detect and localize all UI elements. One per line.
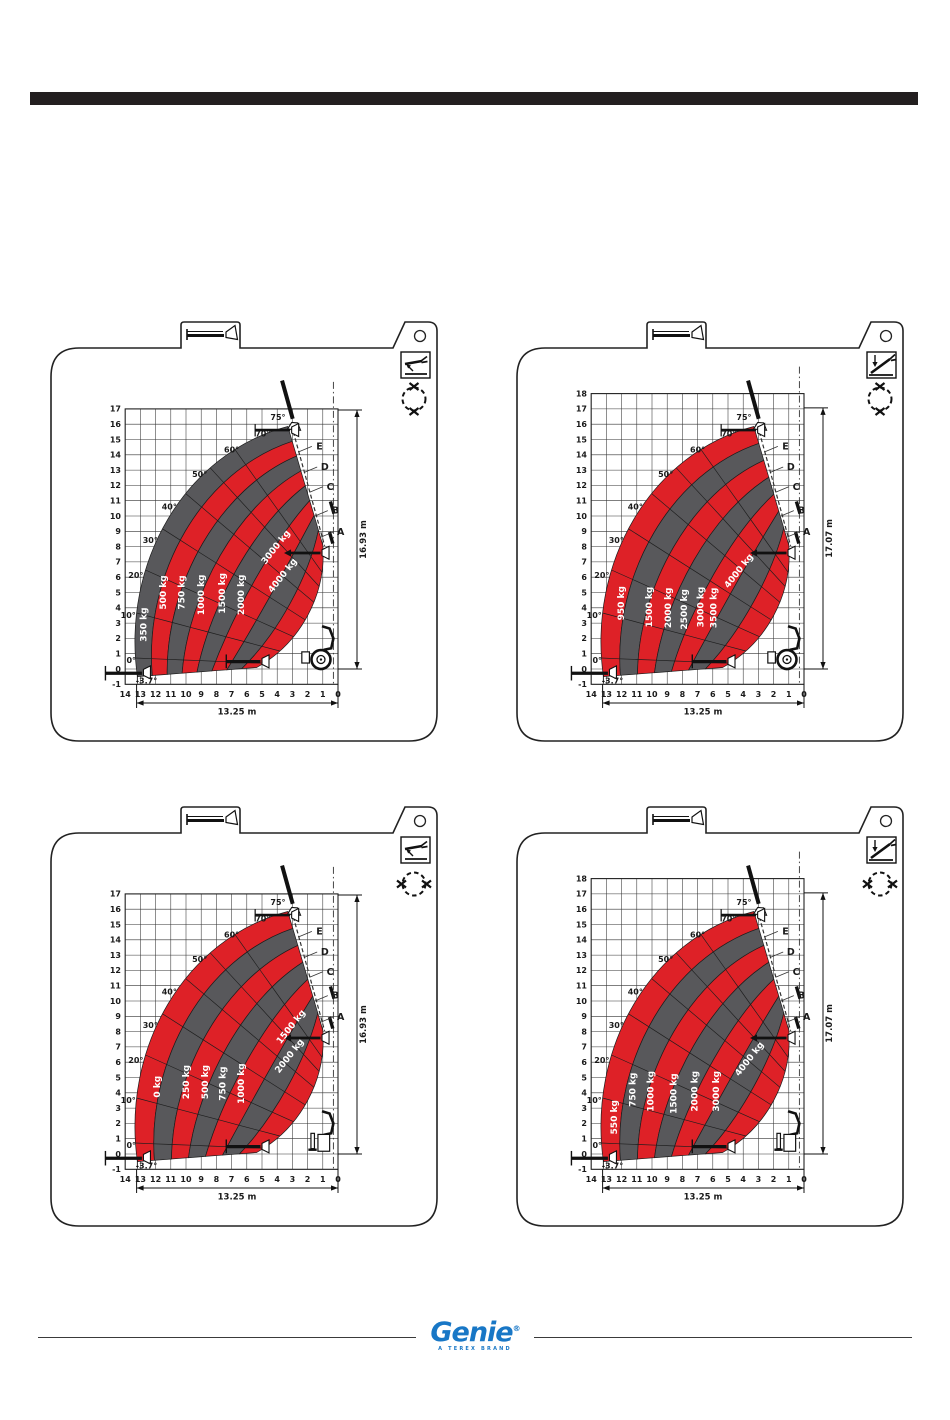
boom-position-letter: A (337, 527, 345, 538)
brand-tagline: A TEREX BRAND (430, 1346, 519, 1352)
boom-angle-label: 0° (126, 1141, 136, 1150)
boom-angle-label: 10° (587, 1096, 602, 1105)
boom-position-letter: A (803, 527, 811, 538)
page-header-bar (30, 92, 918, 105)
y-tick-label: 0 (115, 665, 121, 674)
x-tick-label: 1 (320, 690, 326, 699)
y-tick-label: 10 (576, 997, 588, 1006)
y-tick-label: -1 (578, 680, 587, 689)
x-tick-label: 2 (305, 1175, 311, 1184)
x-tick-label: 4 (274, 690, 280, 699)
x-tick-label: 9 (198, 690, 204, 699)
min-angle-label: -3.7° (602, 676, 624, 685)
boom-angle-label: 10° (121, 611, 136, 620)
x-tick-label: 14 (120, 690, 132, 699)
y-tick-label: 8 (581, 542, 587, 551)
y-tick-label: 9 (581, 1012, 587, 1021)
y-tick-label: -1 (112, 680, 121, 689)
y-tick-label: 5 (581, 1073, 587, 1082)
registered-mark: ® (513, 1324, 520, 1333)
min-angle-label: -3.7° (602, 1161, 624, 1170)
y-tick-label: 14 (576, 936, 588, 945)
boom-angle-label: 50° (658, 955, 673, 964)
boom-position-letter: D (321, 462, 329, 473)
y-tick-label: 17 (110, 890, 121, 899)
x-tick-label: 11 (631, 1175, 643, 1184)
boom-position-letter: A (803, 1012, 811, 1023)
y-tick-label: 16 (576, 905, 588, 914)
x-tick-label: 0 (801, 690, 807, 699)
pad-glyph (302, 652, 310, 663)
x-tick-label: 6 (710, 1175, 716, 1184)
x-tick-label: 0 (335, 690, 341, 699)
machine-tilt-wrench-icon (867, 352, 896, 378)
x-tick-label: 7 (229, 690, 235, 699)
width-dimension-label: 13.25 m (684, 1193, 723, 1203)
boom-position-letter: B (798, 991, 805, 1002)
boom-angle-label: 50° (192, 955, 207, 964)
zone-label: 2000 kg (664, 587, 674, 628)
width-dimension-label: 13.25 m (684, 708, 723, 718)
y-tick-label: 12 (110, 481, 121, 490)
y-tick-label: -1 (578, 1165, 587, 1174)
boom-position-letter: B (332, 991, 339, 1002)
x-tick-label: 3 (756, 690, 762, 699)
x-tick-label: 10 (646, 1175, 658, 1184)
x-tick-label: 11 (165, 1175, 177, 1184)
y-tick-label: 14 (110, 451, 122, 460)
x-tick-label: 2 (771, 690, 777, 699)
y-tick-label: 15 (110, 920, 122, 929)
x-tick-label: 8 (214, 1175, 220, 1184)
zone-label: 3500 kg (710, 587, 720, 628)
x-tick-label: 3 (756, 1175, 762, 1184)
y-tick-label: 17 (576, 890, 587, 899)
y-tick-label: 16 (576, 420, 588, 429)
x-tick-label: 2 (771, 1175, 777, 1184)
stabilizer-box-glyph (784, 1134, 796, 1151)
boom-angle-label: 70° (721, 430, 736, 439)
x-tick-label: 13 (135, 1175, 146, 1184)
capacity-chart-panel-top-right: 1413121110987654321018171615141312111098… (516, 313, 908, 746)
y-tick-label: 12 (576, 481, 587, 490)
capacity-chart-panel-bottom-right: 1413121110987654321018171615141312111098… (516, 798, 908, 1231)
y-tick-label: 3 (581, 619, 587, 628)
x-tick-label: 9 (664, 690, 670, 699)
y-tick-label: 3 (115, 619, 121, 628)
boom-position-letter: E (782, 441, 789, 452)
boom-angle-label: 75° (736, 413, 751, 422)
x-tick-label: 10 (646, 690, 658, 699)
zone-label: 500 kg (159, 575, 169, 609)
boom-position-letter: A (337, 1012, 345, 1023)
zone-label: 750 kg (628, 1073, 638, 1107)
y-tick-label: 18 (576, 389, 588, 398)
x-tick-label: 7 (229, 1175, 235, 1184)
machine-tilt-wrench-icon (867, 837, 896, 863)
boom-position-letter: D (787, 947, 795, 958)
y-tick-label: 13 (576, 951, 587, 960)
boom-position-letter: D (321, 947, 329, 958)
boom-angle-label: 75° (736, 898, 751, 907)
y-tick-label: 15 (576, 435, 588, 444)
y-tick-label: 8 (115, 542, 121, 551)
boom-position-letter: C (327, 967, 334, 978)
stabilizer-leg-glyph (777, 1133, 780, 1148)
x-tick-label: 6 (244, 690, 250, 699)
boom-position-letter: E (316, 926, 323, 937)
capacity-chart-bottom-right: 1413121110987654321018171615141312111098… (516, 798, 908, 1231)
boom-position-letter: C (793, 482, 800, 493)
zone-label: 350 kg (139, 607, 149, 641)
boom-angle-label: 70° (255, 430, 270, 439)
boom-angle-label: 70° (721, 915, 736, 924)
x-tick-label: 3 (290, 1175, 296, 1184)
boom-angle-label: 30° (143, 536, 158, 545)
boom-angle-label: 20° (128, 571, 143, 580)
y-tick-label: 8 (115, 1027, 121, 1036)
zone-label: 1500 kg (669, 1073, 679, 1114)
zone-label: 2000 kg (691, 1071, 701, 1112)
height-dimension-label: 16.93 m (359, 520, 369, 559)
y-tick-label: 2 (581, 634, 587, 643)
zone-label: 950 kg (617, 586, 627, 620)
x-tick-label: 8 (680, 690, 686, 699)
boom-position-letter: B (798, 506, 805, 517)
y-tick-label: 7 (115, 558, 121, 567)
zone-label: 1000 kg (647, 1071, 657, 1112)
y-tick-label: 8 (581, 1027, 587, 1036)
x-tick-label: 14 (586, 1175, 598, 1184)
capacity-chart-top-right: 1413121110987654321018171615141312111098… (516, 313, 908, 746)
boom-position-letter: E (782, 926, 789, 937)
x-tick-label: 4 (740, 1175, 746, 1184)
machine-level-wrench-icon (401, 352, 430, 378)
y-tick-label: 11 (576, 982, 588, 991)
boom-angle-label: 75° (270, 413, 285, 422)
boom-angle-label: 30° (143, 1021, 158, 1030)
y-tick-label: 0 (115, 1150, 121, 1159)
x-tick-label: 6 (710, 690, 716, 699)
x-tick-label: 12 (616, 1175, 627, 1184)
y-tick-label: 6 (581, 573, 587, 582)
y-tick-label: 5 (581, 588, 587, 597)
height-dimension-label: 16.93 m (359, 1005, 369, 1044)
x-tick-label: 8 (214, 690, 220, 699)
zone-label: 750 kg (219, 1066, 229, 1100)
x-tick-label: 12 (616, 690, 627, 699)
y-tick-label: 3 (115, 1104, 121, 1113)
capacity-chart-bottom-left: 1413121110987654321017161514131211109876… (50, 798, 442, 1231)
zone-label: 750 kg (177, 575, 187, 609)
genie-logo: Genie® (430, 1317, 519, 1348)
y-tick-label: 10 (576, 512, 588, 521)
height-dimension-label: 17.07 m (825, 1004, 835, 1043)
y-tick-label: 15 (110, 435, 122, 444)
boom-angle-label: 50° (658, 470, 673, 479)
x-tick-label: 4 (274, 1175, 280, 1184)
boom-angle-label: 60° (224, 446, 239, 455)
boom-angle-label: 0° (126, 656, 136, 665)
x-tick-label: 1 (786, 1175, 792, 1184)
x-tick-label: 10 (180, 1175, 192, 1184)
y-tick-label: 16 (110, 905, 122, 914)
x-tick-label: 14 (586, 690, 598, 699)
x-tick-label: 8 (680, 1175, 686, 1184)
x-tick-label: 5 (725, 690, 731, 699)
y-tick-label: 9 (581, 527, 587, 536)
zone-label: 550 kg (610, 1100, 620, 1134)
y-tick-label: 7 (115, 1043, 121, 1052)
y-tick-label: 5 (115, 1073, 121, 1082)
y-tick-label: 13 (576, 466, 587, 475)
boom-angle-label: 20° (128, 1056, 143, 1065)
x-tick-label: 9 (664, 1175, 670, 1184)
boom-angle-label: 10° (121, 1096, 136, 1105)
y-tick-label: 13 (110, 951, 121, 960)
boom-angle-label: 40° (162, 987, 177, 996)
x-tick-label: 14 (120, 1175, 132, 1184)
y-tick-label: 14 (110, 936, 122, 945)
capacity-chart-panel-top-left: 1413121110987654321017161514131211109876… (50, 313, 442, 746)
x-tick-label: 1 (786, 690, 792, 699)
zone-label: 2000 kg (237, 574, 247, 615)
y-tick-label: 6 (115, 573, 121, 582)
boom-angle-label: 20° (594, 571, 609, 580)
x-tick-label: 5 (259, 690, 265, 699)
y-tick-label: 18 (576, 874, 588, 883)
zone-label: 3000 kg (697, 587, 707, 628)
y-tick-label: 5 (115, 588, 121, 597)
y-tick-label: 13 (110, 466, 121, 475)
y-tick-label: 14 (576, 451, 588, 460)
y-tick-label: 1 (115, 650, 121, 659)
pad-glyph (768, 652, 776, 663)
boom-position-letter: C (327, 482, 334, 493)
y-tick-label: 17 (576, 405, 587, 414)
zone-label: 1500 kg (218, 573, 228, 614)
y-tick-label: 6 (115, 1058, 121, 1067)
boom-angle-label: 60° (690, 931, 705, 940)
x-tick-label: 9 (198, 1175, 204, 1184)
x-tick-label: 10 (180, 690, 192, 699)
boom-angle-label: 30° (609, 536, 624, 545)
boom-angle-label: 75° (270, 898, 285, 907)
boom-position-letter: E (316, 441, 323, 452)
x-tick-label: 11 (165, 690, 177, 699)
y-tick-label: 9 (115, 527, 121, 536)
zone-label: 500 kg (201, 1065, 211, 1099)
min-angle-label: -3.7° (136, 676, 158, 685)
boom-angle-label: 60° (224, 931, 239, 940)
y-tick-label: -1 (112, 1165, 121, 1174)
boom-angle-label: 0° (592, 656, 602, 665)
stabilizer-leg-glyph (311, 1133, 314, 1148)
boom-angle-label: 70° (255, 915, 270, 924)
capacity-chart-panel-bottom-left: 1413121110987654321017161514131211109876… (50, 798, 442, 1231)
boom-angle-label: 30° (609, 1021, 624, 1030)
y-tick-label: 10 (110, 512, 122, 521)
x-tick-label: 7 (695, 690, 701, 699)
boom-angle-label: 40° (628, 502, 643, 511)
boom-angle-label: 0° (592, 1141, 602, 1150)
x-tick-label: 0 (801, 1175, 807, 1184)
y-tick-label: 11 (576, 497, 588, 506)
x-tick-label: 13 (601, 690, 612, 699)
y-tick-label: 0 (581, 1150, 587, 1159)
y-tick-label: 12 (110, 966, 121, 975)
y-tick-label: 9 (115, 1012, 121, 1021)
height-dimension-label: 17.07 m (825, 519, 835, 558)
y-tick-label: 11 (110, 497, 122, 506)
stabilizer-box-glyph (318, 1134, 330, 1151)
y-tick-label: 7 (581, 1043, 587, 1052)
x-tick-label: 5 (259, 1175, 265, 1184)
boom-angle-label: 40° (162, 502, 177, 511)
x-tick-label: 11 (631, 690, 643, 699)
y-tick-label: 11 (110, 982, 122, 991)
boom-position-letter: B (332, 506, 339, 517)
zone-label: 3000 kg (712, 1071, 722, 1112)
y-tick-label: 1 (581, 1135, 587, 1144)
zone-label: 0 kg (153, 1076, 163, 1098)
y-tick-label: 17 (110, 405, 121, 414)
capacity-chart-top-left: 1413121110987654321017161514131211109876… (50, 313, 442, 746)
x-tick-label: 4 (740, 690, 746, 699)
y-tick-label: 2 (115, 634, 121, 643)
boom-angle-label: 60° (690, 446, 705, 455)
y-tick-label: 0 (581, 665, 587, 674)
y-tick-label: 1 (115, 1135, 121, 1144)
x-tick-label: 5 (725, 1175, 731, 1184)
y-tick-label: 10 (110, 997, 122, 1006)
footer-brand: Genie® A TEREX BRAND (0, 1316, 950, 1354)
manual-page: { "page": { "top_bar_color": "#231f20", … (0, 0, 950, 1420)
x-tick-label: 6 (244, 1175, 250, 1184)
width-dimension-label: 13.25 m (218, 708, 257, 718)
y-tick-label: 12 (576, 966, 587, 975)
zone-label: 2500 kg (680, 589, 690, 630)
min-angle-label: -3.7° (136, 1161, 158, 1170)
y-tick-label: 1 (581, 650, 587, 659)
boom-position-letter: C (793, 967, 800, 978)
y-tick-label: 15 (576, 920, 588, 929)
boom-position-letter: D (787, 462, 795, 473)
x-tick-label: 7 (695, 1175, 701, 1184)
zone-label: 1000 kg (197, 574, 207, 615)
machine-level-wrench-icon (401, 837, 430, 863)
x-tick-label: 13 (135, 690, 146, 699)
y-tick-label: 6 (581, 1058, 587, 1067)
y-tick-label: 2 (115, 1119, 121, 1128)
width-dimension-label: 13.25 m (218, 1193, 257, 1203)
x-tick-label: 0 (335, 1175, 341, 1184)
y-tick-label: 7 (581, 558, 587, 567)
boom-angle-label: 20° (594, 1056, 609, 1065)
zone-label: 1500 kg (645, 587, 655, 628)
x-tick-label: 13 (601, 1175, 612, 1184)
boom-angle-label: 40° (628, 987, 643, 996)
y-tick-label: 2 (581, 1119, 587, 1128)
boom-angle-label: 10° (587, 611, 602, 620)
x-tick-label: 3 (290, 690, 296, 699)
x-tick-label: 1 (320, 1175, 326, 1184)
zone-label: 250 kg (182, 1065, 192, 1099)
boom-angle-label: 50° (192, 470, 207, 479)
x-tick-label: 12 (150, 1175, 161, 1184)
y-tick-label: 3 (581, 1104, 587, 1113)
x-tick-label: 12 (150, 690, 161, 699)
x-tick-label: 2 (305, 690, 311, 699)
y-tick-label: 16 (110, 420, 122, 429)
zone-label: 1000 kg (237, 1063, 247, 1104)
